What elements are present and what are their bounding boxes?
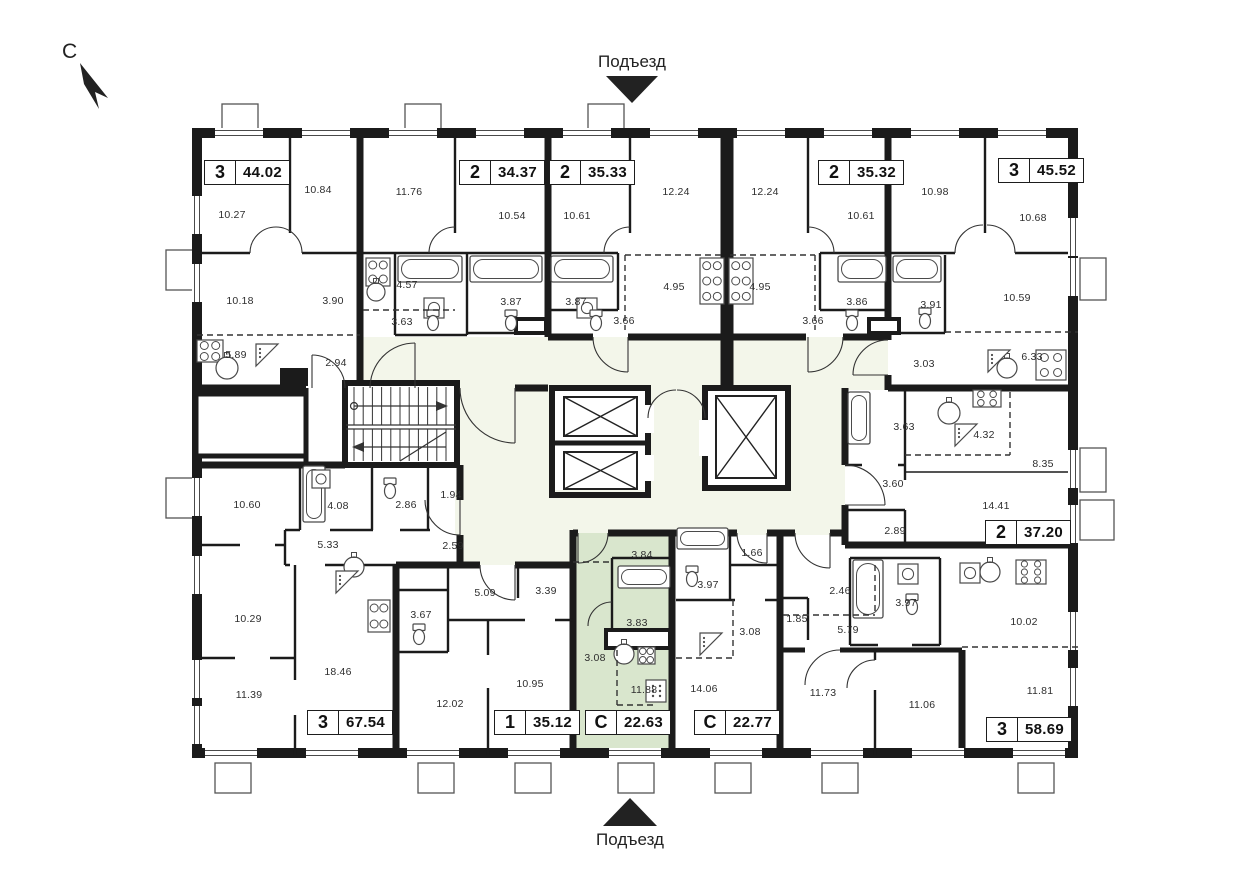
apartment-badge[interactable]: 344.02 (204, 160, 290, 185)
floorplan-stage: С Подъезд Подъезд 344.0210.2710.8410.183… (0, 0, 1245, 880)
apartment-area: 35.33 (581, 161, 634, 184)
apartment-type: 3 (999, 159, 1030, 182)
apartment-type: 2 (986, 521, 1017, 544)
apartment-area: 35.12 (526, 711, 579, 734)
compass-north-label: С (62, 40, 77, 64)
apartment-type: С (695, 711, 726, 734)
apartment-badge[interactable]: 235.33 (549, 160, 635, 185)
apartment-area: 22.77 (726, 711, 779, 734)
apartment-area: 34.37 (491, 161, 544, 184)
apartment-type: С (586, 711, 617, 734)
apartment-area: 35.32 (850, 161, 903, 184)
apartment-badge[interactable]: 235.32 (818, 160, 904, 185)
compass: С (60, 40, 130, 120)
apartment-area: 67.54 (339, 711, 392, 734)
apartment-type: 1 (495, 711, 526, 734)
apartment-badge[interactable]: 358.69 (986, 717, 1072, 742)
apartment-type: 3 (205, 161, 236, 184)
floorplan-svg (0, 0, 1245, 880)
apartment-area: 22.63 (617, 711, 670, 734)
apartment-type: 3 (308, 711, 339, 734)
entrance-label-top: Подъезд (598, 52, 666, 72)
apartment-area: 58.69 (1018, 718, 1071, 741)
apartment-area: 45.52 (1030, 159, 1083, 182)
apartment-badge[interactable]: С22.77 (694, 710, 780, 735)
apartment-badge[interactable]: 135.12 (494, 710, 580, 735)
apartment-type: 2 (550, 161, 581, 184)
apartment-area: 44.02 (236, 161, 289, 184)
apartment-type: 2 (460, 161, 491, 184)
apartment-badge[interactable]: 237.20 (985, 520, 1071, 545)
stairs (345, 383, 457, 465)
apartment-badge[interactable]: С22.63 (585, 710, 671, 735)
entrance-arrow-down-icon (606, 76, 658, 103)
apartment-badge[interactable]: 345.52 (998, 158, 1084, 183)
entrance-label-bottom: Подъезд (596, 830, 664, 850)
apartment-type: 3 (987, 718, 1018, 741)
apartment-type: 2 (819, 161, 850, 184)
entrance-arrow-up-icon (603, 798, 657, 826)
apartment-badge[interactable]: 367.54 (307, 710, 393, 735)
apartment-area: 37.20 (1017, 521, 1070, 544)
apartment-badge[interactable]: 234.37 (459, 160, 545, 185)
